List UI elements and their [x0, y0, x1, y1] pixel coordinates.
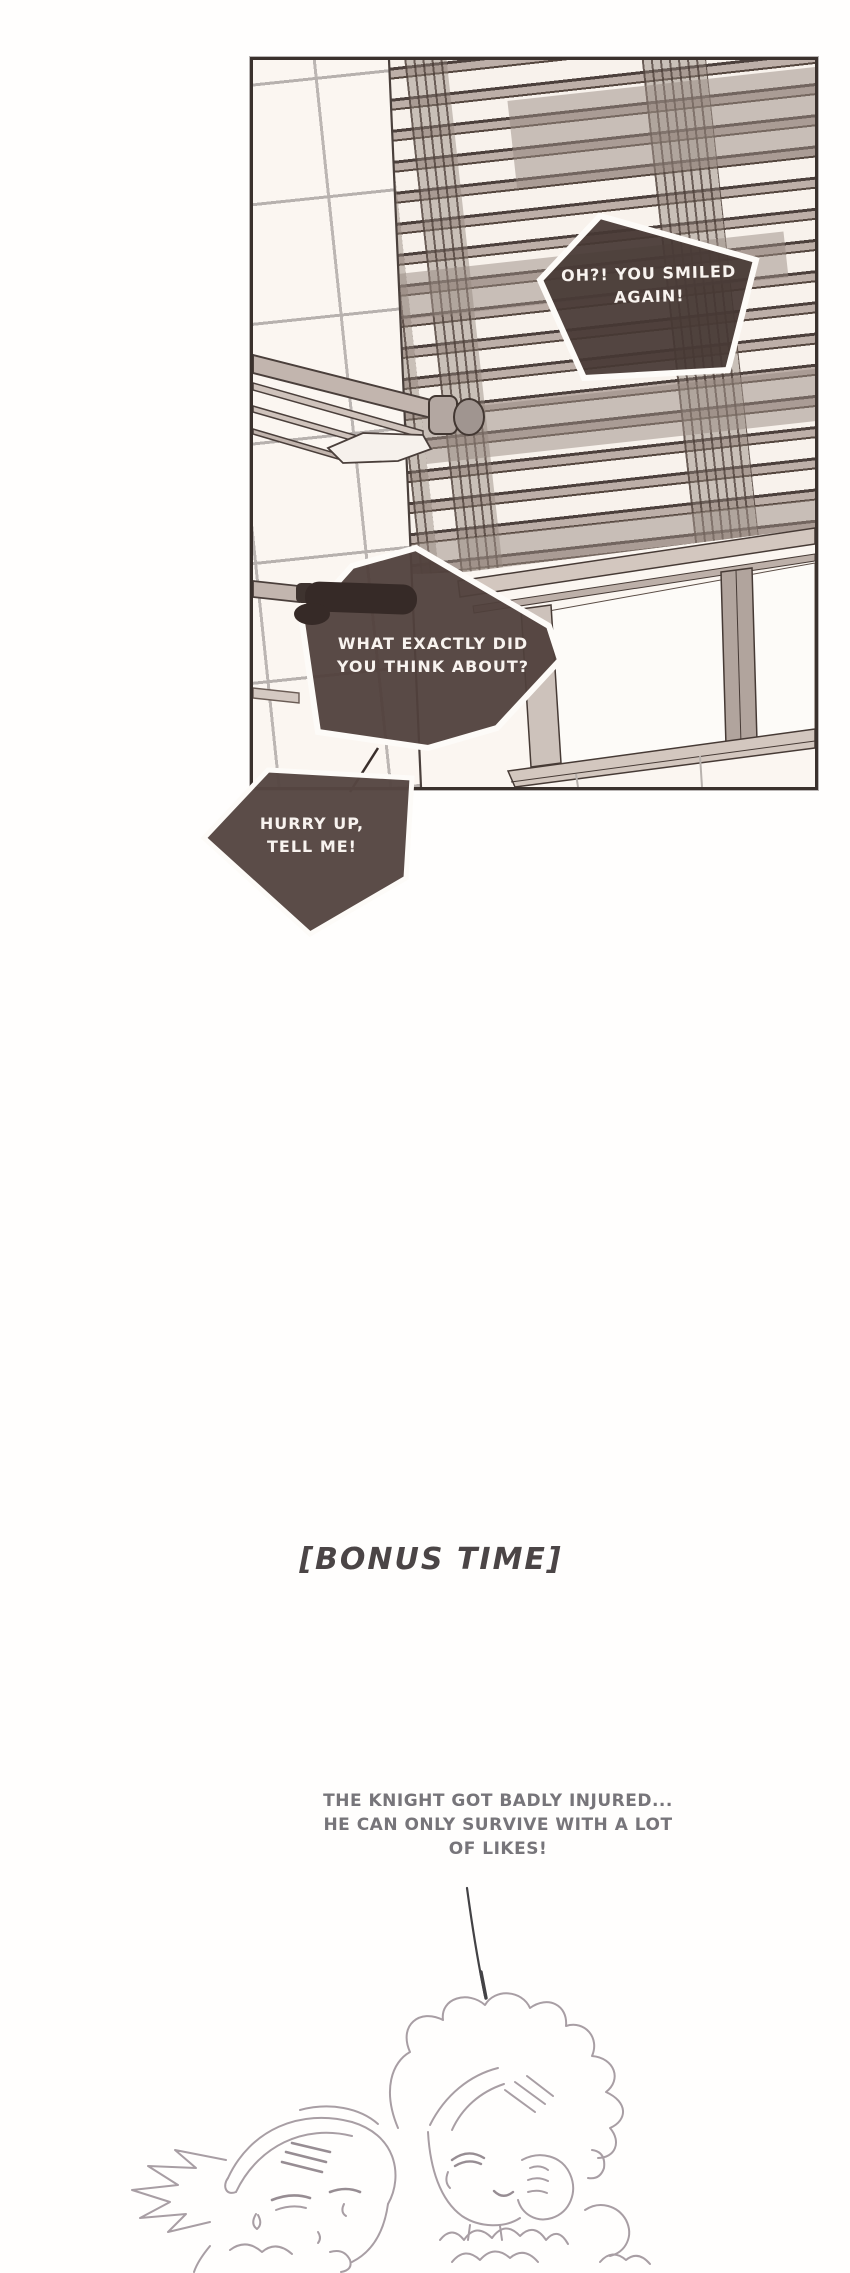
- knight-closed-eye: [452, 2153, 484, 2166]
- chibi-sketch: [0, 1980, 850, 2273]
- knight-hand: [518, 2155, 573, 2219]
- knight-ear: [588, 2150, 604, 2178]
- speech-bubble-1-text: OH?! YOU SMILED AGAIN!: [555, 260, 742, 311]
- manga-panel: [250, 57, 818, 790]
- brow-hatching: [282, 2143, 330, 2172]
- left-char-eyes: [272, 2189, 360, 2200]
- manga-page: OH?! YOU SMILED AGAIN! WHAT EXACTLY DID …: [0, 0, 850, 2273]
- bandana-edge: [228, 2118, 352, 2178]
- speech-bubble-3-text: HURRY UP, TELL ME!: [228, 812, 396, 858]
- knight-collar-ruffle: [440, 2228, 568, 2244]
- knight-mouth: [494, 2191, 513, 2196]
- sweat-drops: [253, 2204, 346, 2229]
- speech-bubble-2-text: WHAT EXACTLY DID YOU THINK ABOUT?: [312, 632, 554, 678]
- bonus-caption: THE KNIGHT GOT BADLY INJURED... HE CAN O…: [286, 1789, 710, 1861]
- knight-face: [428, 2132, 520, 2225]
- knight-hair: [390, 1993, 623, 2158]
- left-char-ponytail: [132, 2150, 226, 2232]
- bonus-time-title: [BONUS TIME]: [0, 1542, 850, 1577]
